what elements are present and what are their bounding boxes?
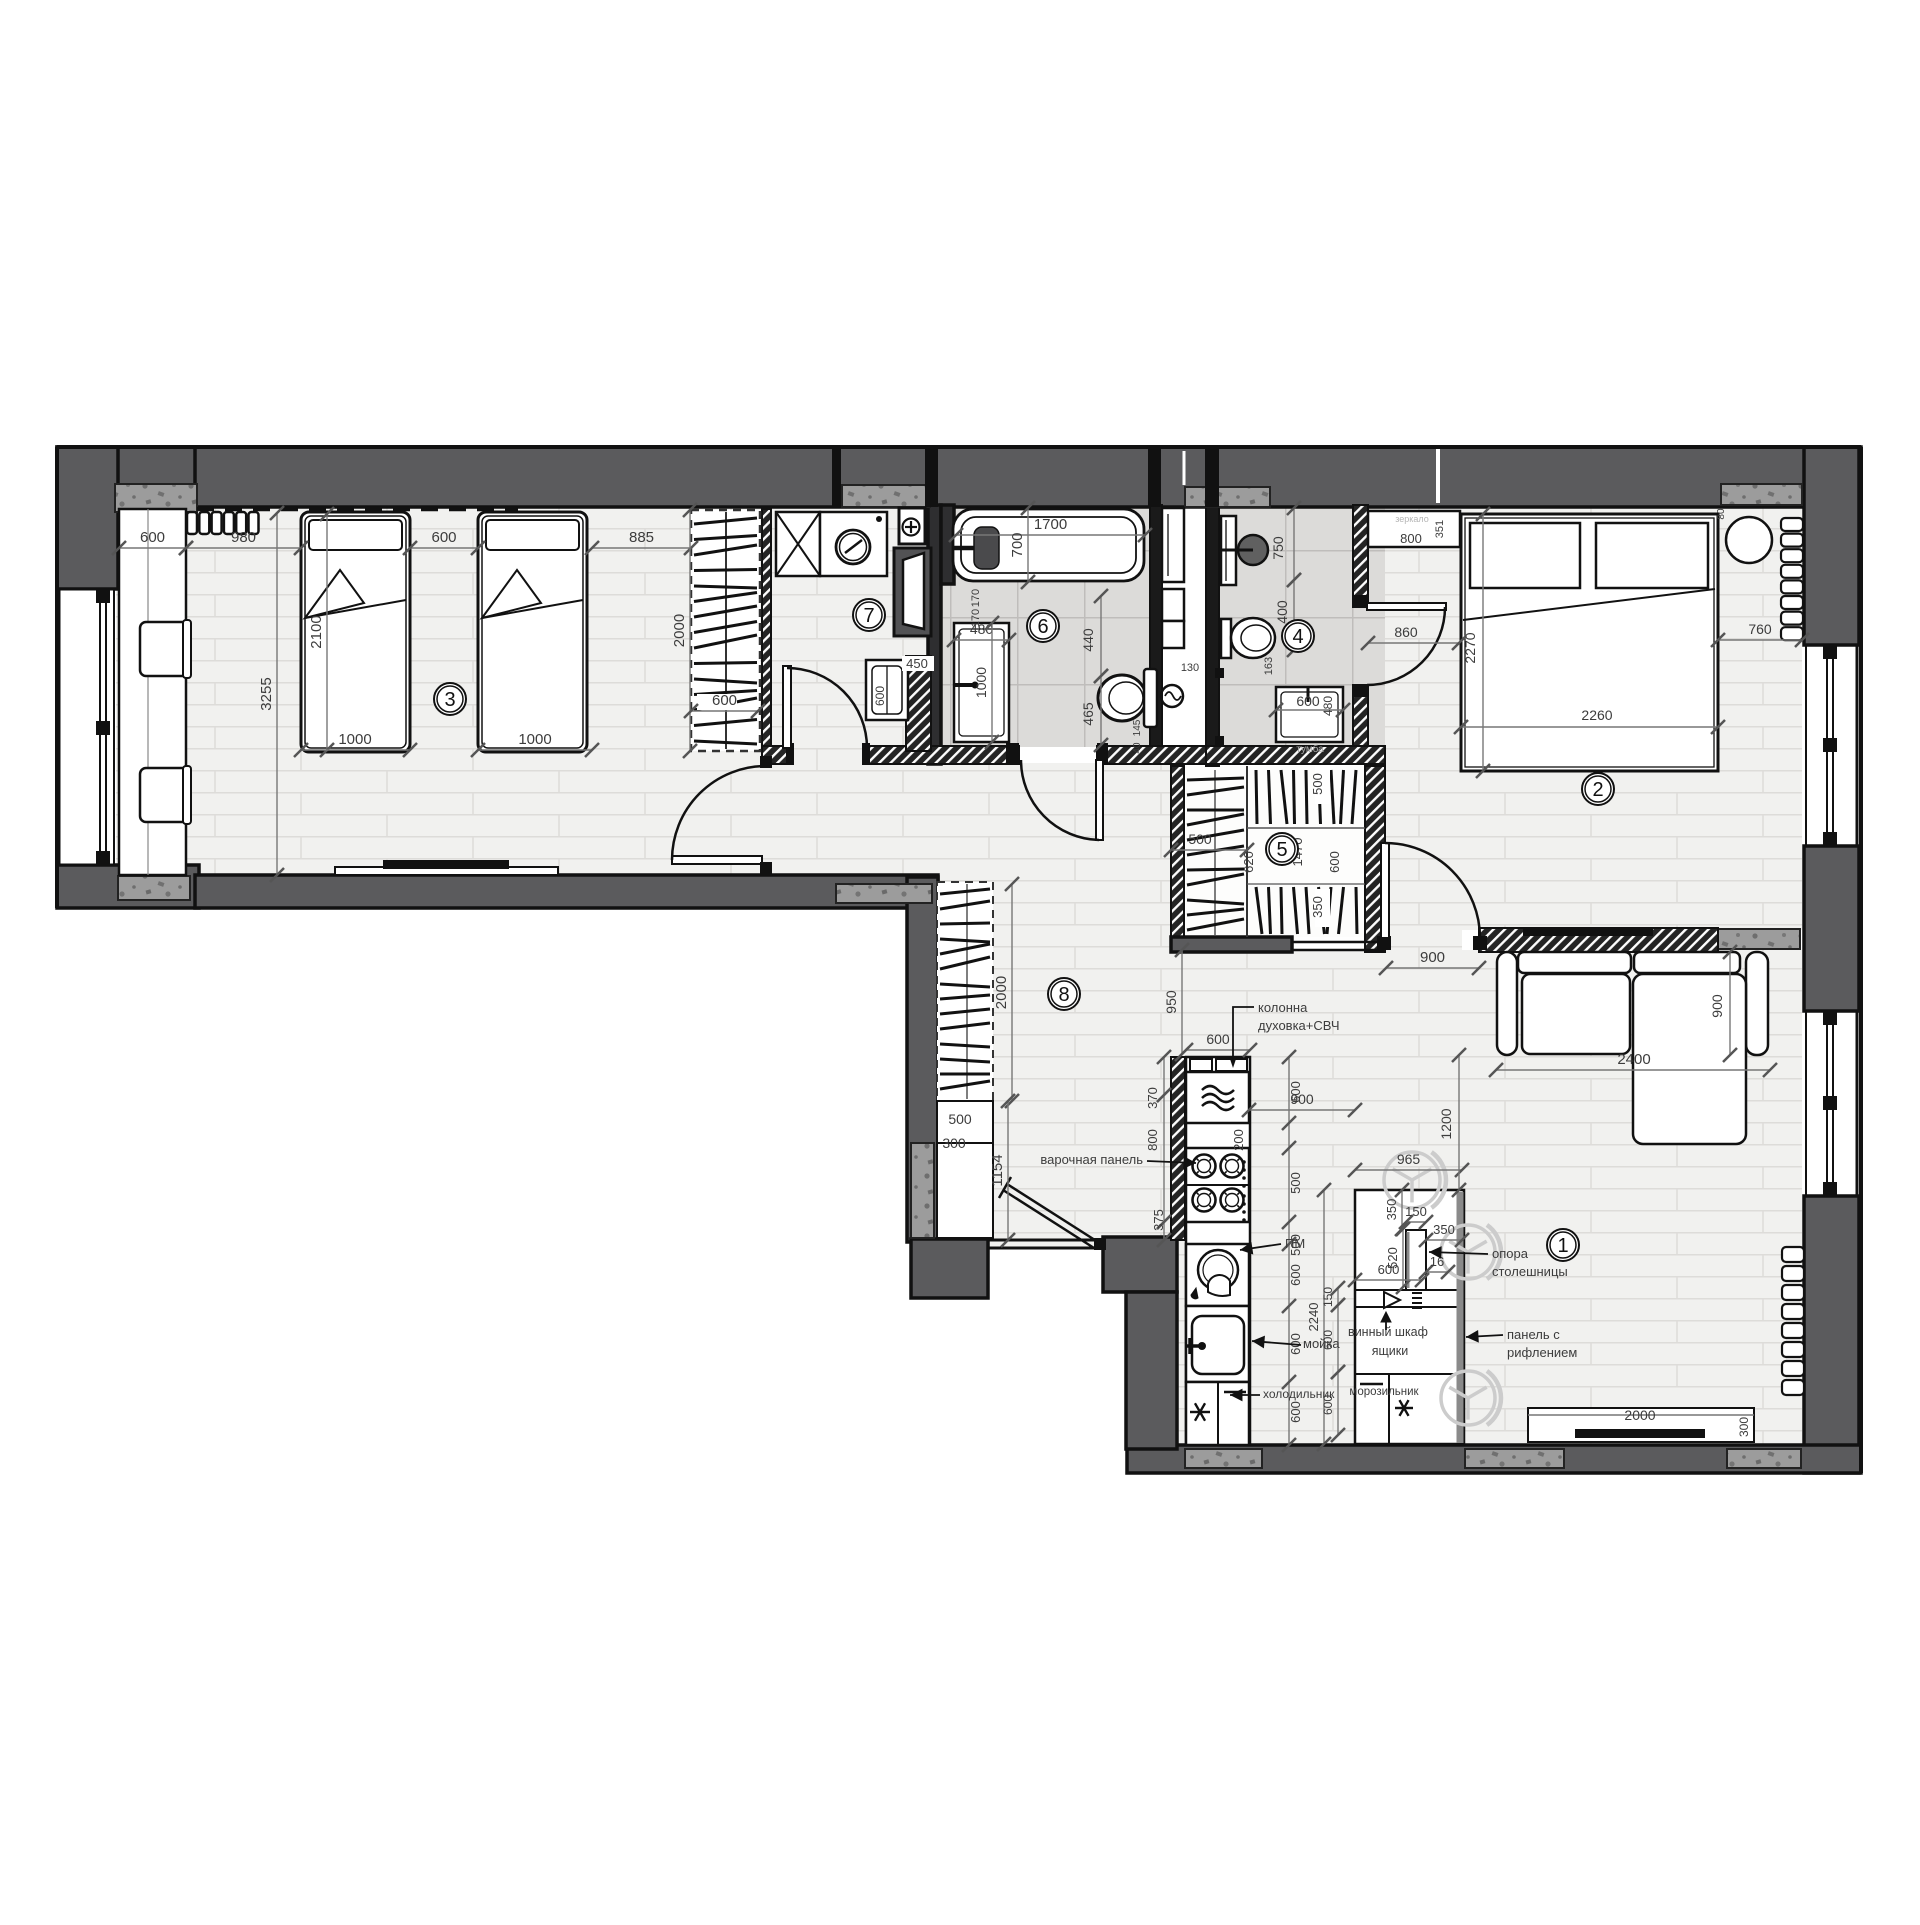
svg-text:350: 350	[1433, 1222, 1455, 1237]
svg-text:150: 150	[1405, 1204, 1427, 1219]
svg-text:500: 500	[948, 1111, 972, 1127]
svg-text:400: 400	[1274, 600, 1290, 624]
svg-text:170: 170	[970, 589, 982, 607]
svg-text:ящики: ящики	[1372, 1344, 1409, 1358]
svg-text:885: 885	[629, 529, 654, 546]
svg-text:3: 3	[444, 689, 455, 711]
svg-text:500: 500	[1188, 831, 1212, 847]
svg-text:колонна: колонна	[1258, 1000, 1308, 1015]
svg-text:700: 700	[1009, 532, 1026, 557]
svg-text:600: 600	[431, 529, 456, 546]
svg-text:1200: 1200	[1438, 1108, 1454, 1139]
svg-text:130: 130	[1181, 662, 1199, 674]
svg-text:зеркало: зеркало	[1395, 514, 1429, 524]
svg-text:опора: опора	[1492, 1246, 1529, 1261]
svg-text:500: 500	[1288, 1172, 1303, 1194]
svg-text:2: 2	[1592, 779, 1603, 801]
svg-text:600: 600	[873, 686, 887, 706]
svg-text:морозильник: морозильник	[1349, 1386, 1419, 1398]
svg-text:панель с: панель с	[1507, 1327, 1560, 1342]
svg-text:370: 370	[1145, 1087, 1160, 1109]
svg-text:200: 200	[1231, 1129, 1246, 1151]
svg-text:ПМ: ПМ	[1285, 1236, 1305, 1251]
svg-text:800: 800	[1145, 1129, 1160, 1151]
svg-text:600: 600	[1206, 1031, 1230, 1047]
svg-text:600: 600	[1327, 851, 1342, 873]
svg-text:3255: 3255	[258, 677, 275, 710]
svg-text:600: 600	[1288, 1401, 1303, 1423]
svg-text:1154: 1154	[989, 1154, 1006, 1186]
svg-text:80: 80	[1716, 508, 1727, 520]
svg-text:800: 800	[1400, 531, 1422, 546]
svg-text:холодильник: холодильник	[1263, 1387, 1335, 1401]
svg-text:480: 480	[1321, 696, 1335, 716]
svg-text:350: 350	[1384, 1199, 1399, 1221]
svg-text:1000: 1000	[973, 667, 989, 698]
svg-text:2240: 2240	[1306, 1303, 1321, 1332]
svg-text:980: 980	[231, 529, 256, 546]
svg-text:351: 351	[1434, 520, 1446, 538]
svg-text:1000: 1000	[338, 731, 371, 748]
svg-text:440: 440	[1080, 628, 1096, 652]
svg-text:варочная панель: варочная панель	[1040, 1152, 1143, 1167]
svg-text:750: 750	[1270, 536, 1286, 560]
svg-text:тумба: тумба	[1296, 743, 1324, 755]
svg-text:163: 163	[1263, 657, 1275, 675]
svg-text:1700: 1700	[1034, 516, 1067, 533]
svg-text:винный шкаф: винный шкаф	[1348, 1325, 1428, 1339]
svg-text:900: 900	[1290, 1091, 1314, 1107]
svg-text:465: 465	[1080, 702, 1096, 726]
svg-text:950: 950	[1163, 990, 1179, 1014]
svg-text:8: 8	[1058, 984, 1069, 1006]
svg-text:столешницы: столешницы	[1492, 1264, 1568, 1279]
svg-text:6: 6	[1037, 616, 1048, 638]
svg-text:620: 620	[1241, 851, 1256, 873]
svg-text:760: 760	[1748, 621, 1772, 637]
svg-text:5: 5	[1276, 839, 1287, 861]
svg-text:860: 860	[1394, 624, 1418, 640]
svg-text:2000: 2000	[1624, 1407, 1655, 1423]
svg-text:450: 450	[906, 656, 928, 671]
svg-text:350: 350	[1310, 896, 1325, 918]
svg-text:2000: 2000	[993, 976, 1010, 1009]
svg-text:145: 145	[1132, 719, 1143, 736]
svg-text:мойка: мойка	[1303, 1336, 1340, 1351]
svg-text:600: 600	[140, 529, 165, 546]
svg-text:40: 40	[1132, 742, 1143, 754]
svg-text:150: 150	[1321, 1287, 1335, 1307]
svg-text:600: 600	[1378, 1262, 1400, 1277]
svg-text:2400: 2400	[1617, 1051, 1650, 1068]
svg-text:600: 600	[1296, 693, 1320, 709]
svg-text:600: 600	[1288, 1264, 1303, 1286]
svg-text:900: 900	[1420, 949, 1445, 966]
svg-text:7: 7	[863, 605, 874, 627]
svg-text:рифлением: рифлением	[1507, 1345, 1577, 1360]
svg-text:2260: 2260	[1581, 707, 1612, 723]
svg-text:300: 300	[942, 1135, 966, 1151]
svg-text:духовка+СВЧ: духовка+СВЧ	[1258, 1018, 1340, 1033]
svg-text:900: 900	[1709, 994, 1725, 1018]
svg-text:965: 965	[1397, 1151, 1421, 1167]
svg-text:500: 500	[1310, 773, 1325, 795]
svg-text:2270: 2270	[1462, 632, 1478, 663]
svg-text:1000: 1000	[518, 731, 551, 748]
svg-text:2000: 2000	[671, 614, 688, 647]
svg-text:300: 300	[1737, 1417, 1751, 1437]
svg-text:375: 375	[1151, 1209, 1166, 1231]
svg-text:600: 600	[712, 692, 737, 709]
svg-text:4: 4	[1292, 626, 1303, 648]
svg-text:2100: 2100	[308, 615, 325, 648]
svg-text:1: 1	[1557, 1235, 1568, 1257]
